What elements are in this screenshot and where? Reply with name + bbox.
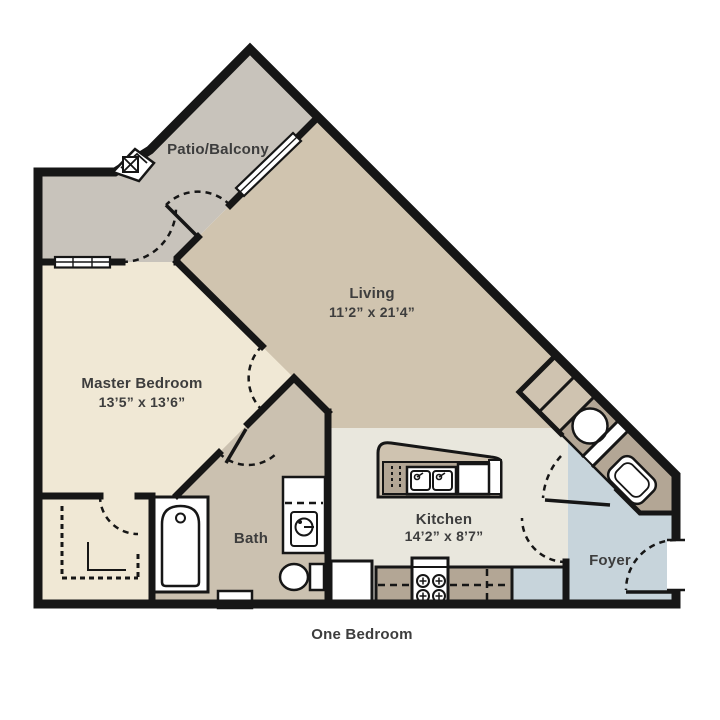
double-sink bbox=[407, 467, 456, 494]
floor-plan-canvas: Patio/Balcony Living 11’2” x 21’4” Maste… bbox=[0, 0, 720, 720]
living-label: Living bbox=[349, 285, 394, 302]
floor-plan-page: Patio/Balcony Living 11’2” x 21’4” Maste… bbox=[0, 0, 720, 720]
island-end-panel bbox=[489, 460, 501, 494]
vanity-sink bbox=[283, 477, 325, 553]
room-floors bbox=[38, 49, 676, 604]
tub-drain bbox=[176, 514, 185, 523]
kitchen-label: Kitchen bbox=[416, 511, 472, 528]
coat-closet bbox=[512, 567, 566, 604]
master-bedroom-label: Master Bedroom bbox=[81, 375, 202, 392]
toilet bbox=[280, 564, 324, 590]
master-bedroom-dims: 13’5” x 13’6” bbox=[99, 394, 186, 410]
bath-label: Bath bbox=[234, 530, 268, 547]
refrigerator bbox=[331, 561, 372, 604]
living-dims: 11’2” x 21’4” bbox=[329, 304, 415, 320]
bathtub bbox=[153, 497, 208, 592]
plan-title: One Bedroom bbox=[311, 626, 412, 643]
patio-label: Patio/Balcony bbox=[167, 141, 269, 158]
dishwasher bbox=[458, 464, 489, 494]
entry-opening bbox=[667, 540, 685, 590]
foyer-label: Foyer bbox=[589, 552, 631, 569]
kitchen-dims: 14’2” x 8’7” bbox=[405, 528, 484, 544]
bedroom-window bbox=[55, 257, 110, 268]
